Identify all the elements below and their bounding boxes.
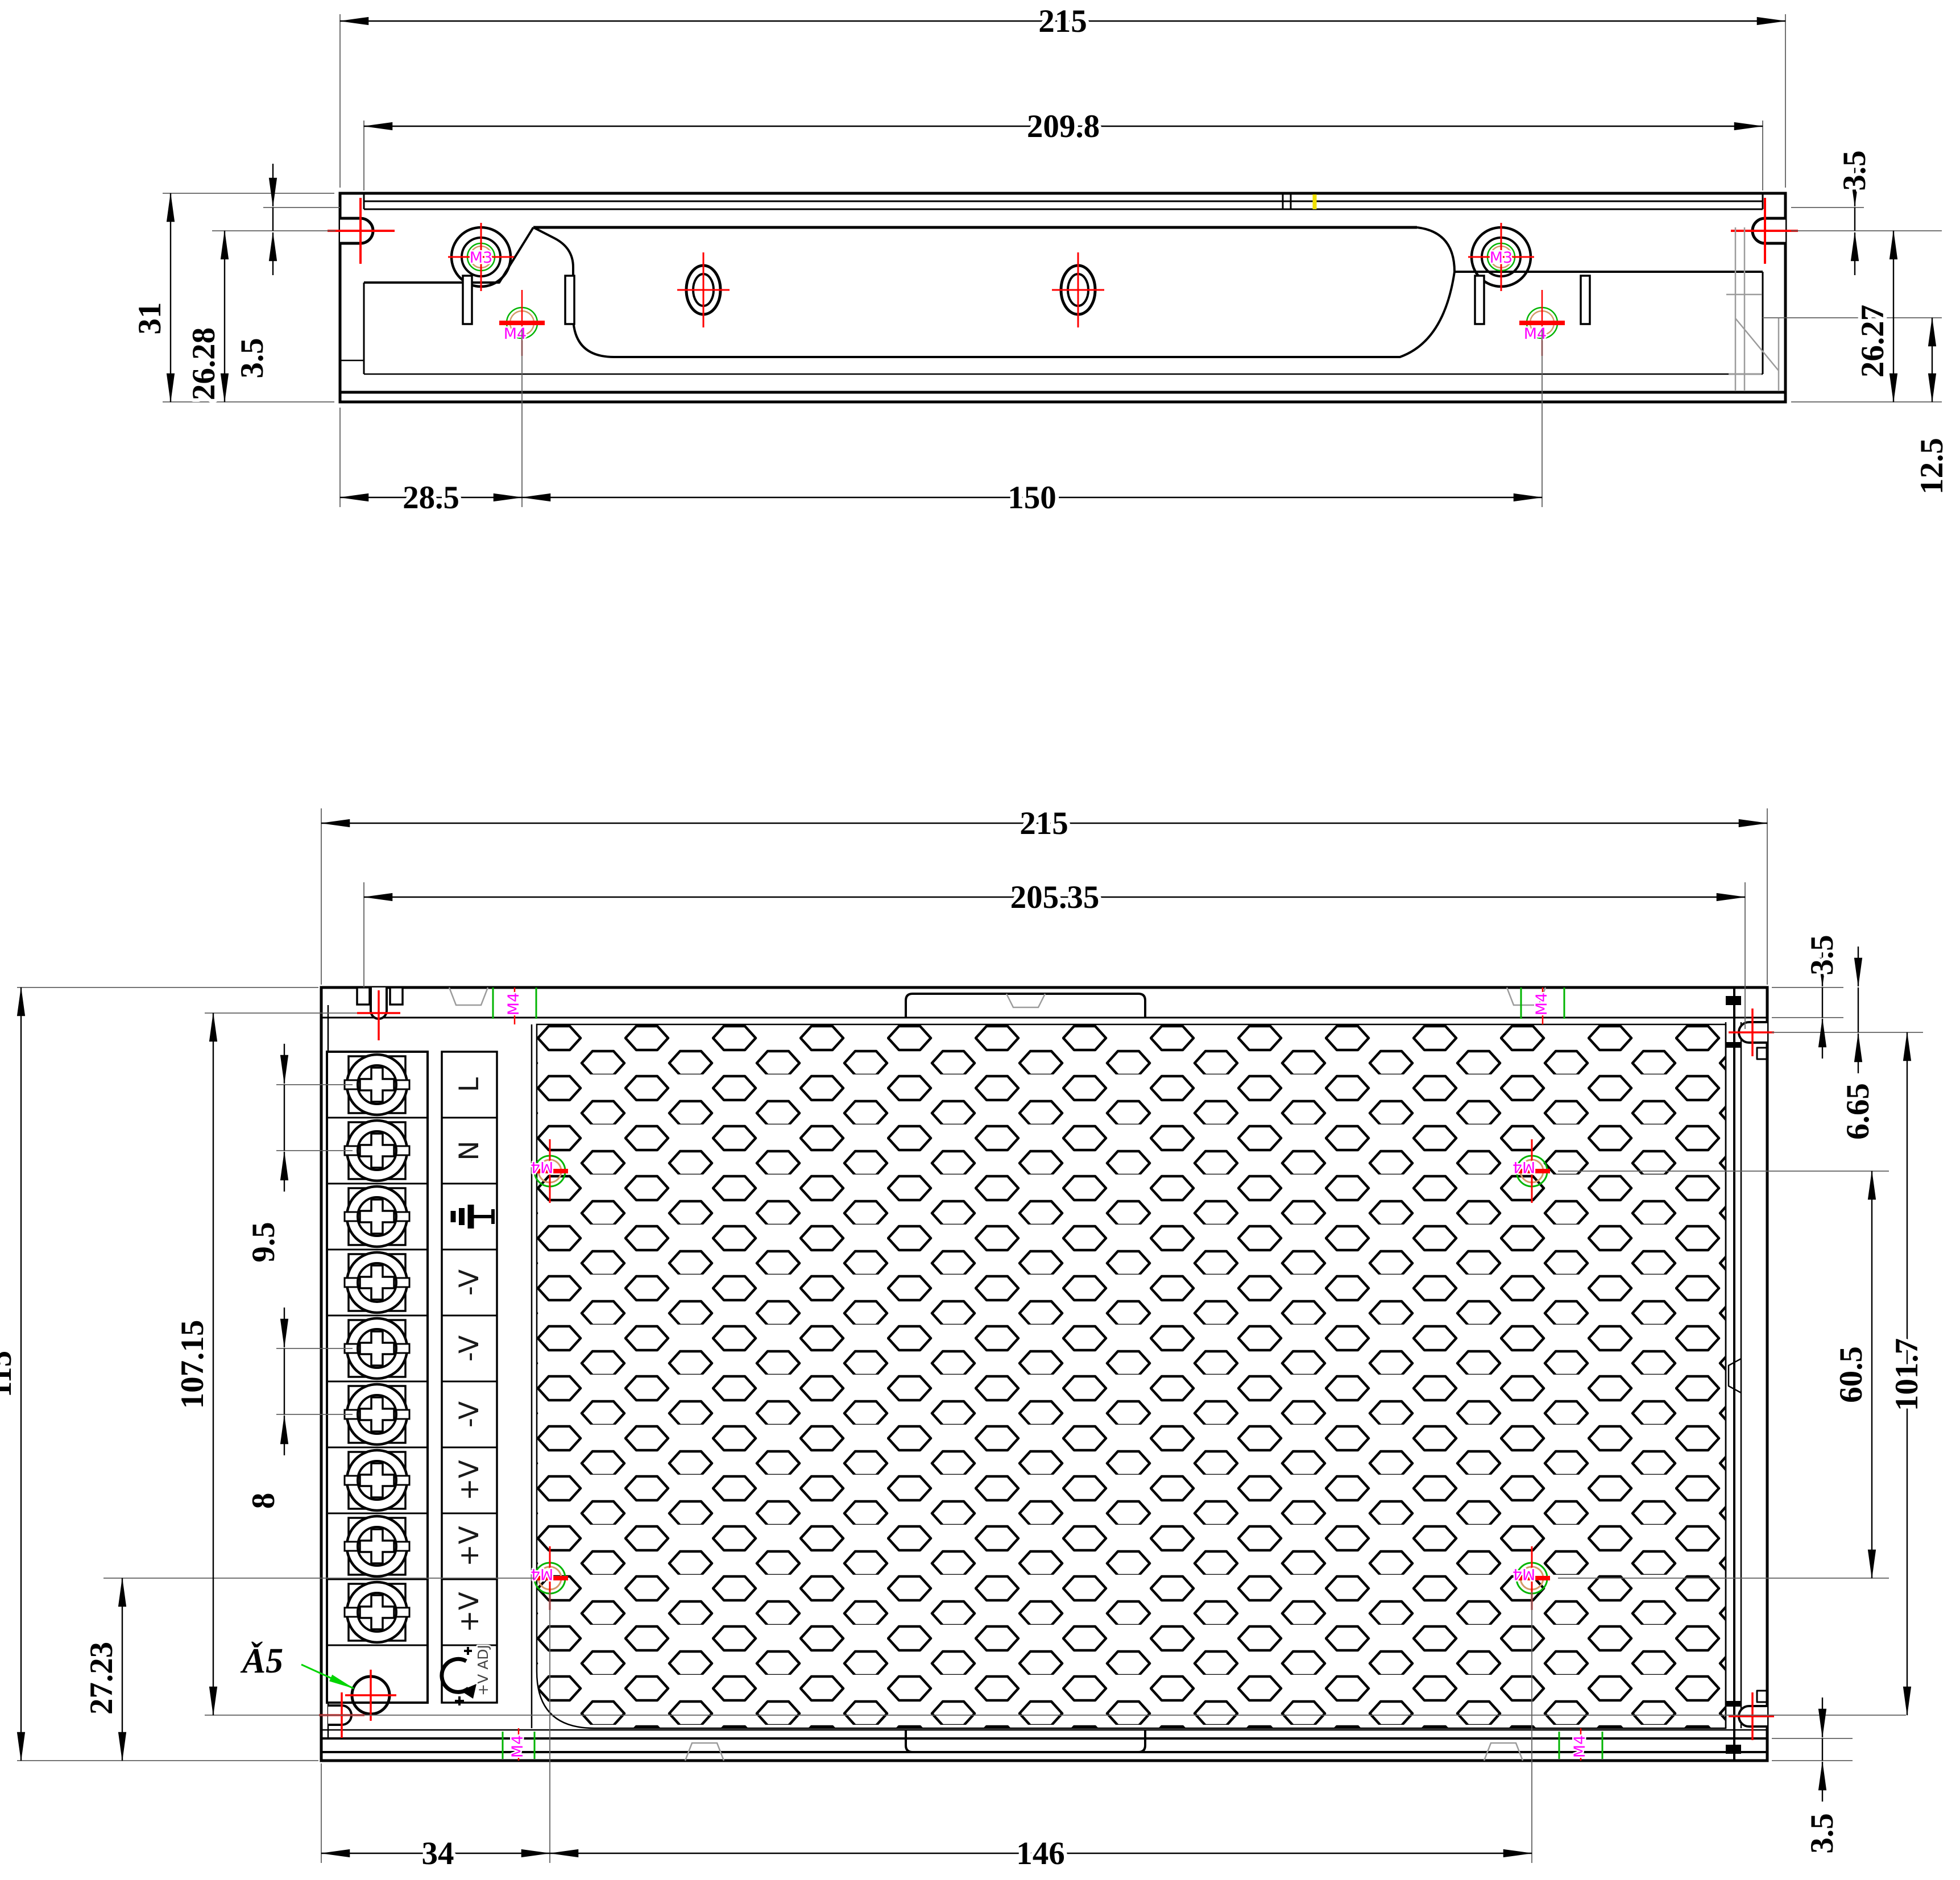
vent-slot bbox=[1581, 276, 1590, 324]
terminal-screw bbox=[345, 1186, 409, 1247]
terminal-screw bbox=[345, 1450, 409, 1510]
dim-hole-column-spacing: 146 bbox=[1016, 1836, 1065, 1871]
latch-pad bbox=[1726, 996, 1741, 1005]
terminal-label: -V bbox=[454, 1335, 485, 1362]
dim-slot-to-bottom-right: 26.27 bbox=[1855, 305, 1891, 377]
dim-input-pitch: 9.5 bbox=[246, 1222, 281, 1262]
dim-top-wall: 3.5 bbox=[1804, 935, 1840, 975]
top-edge-notch bbox=[357, 987, 370, 1005]
latch-pad bbox=[1726, 1701, 1741, 1707]
dim-terminal-span: 107.15 bbox=[175, 1320, 210, 1409]
thread-label: M4 bbox=[531, 1158, 553, 1176]
dim-left-edge-to-hole: 28.5 bbox=[403, 480, 459, 516]
terminal-screw bbox=[345, 1252, 409, 1313]
plan-view: M4 M4 M4 M4 LN-V-V-V+V+V+V bbox=[0, 806, 1925, 1871]
dim-top-to-side-slot: 6.65 bbox=[1840, 1083, 1876, 1140]
vent-slot bbox=[1475, 276, 1484, 324]
thread-label: M4 bbox=[1524, 325, 1547, 343]
drawing-canvas: M3 M3 M4 M4 bbox=[0, 0, 1960, 1880]
thread-label: M4 bbox=[531, 1565, 553, 1583]
technical-drawing-page: M3 M3 M4 M4 bbox=[0, 0, 1960, 1880]
terminal-label: N bbox=[454, 1140, 485, 1160]
terminal-screw bbox=[345, 1582, 409, 1642]
dim-bottom-wall: 3.5 bbox=[1804, 1813, 1840, 1853]
terminal-label: +V bbox=[454, 1460, 485, 1501]
dim-top-to-slot-left: 3.5 bbox=[234, 338, 270, 378]
terminal-screw bbox=[345, 1120, 409, 1181]
thread-label: M4 bbox=[1571, 1735, 1589, 1758]
terminal-label: L bbox=[454, 1077, 485, 1092]
side-view: M3 M3 M4 M4 bbox=[132, 3, 1950, 516]
thread-label: M4 bbox=[509, 1735, 527, 1758]
terminal-block: LN-V-V-V+V+V+V +V ADJ bbox=[327, 1052, 497, 1705]
terminal-label: -V bbox=[454, 1269, 485, 1296]
thread-label: M4 bbox=[505, 993, 523, 1015]
thread-label: M4 bbox=[1513, 1565, 1535, 1583]
terminal-screw bbox=[345, 1055, 409, 1115]
hole-callout: Ǎ5 bbox=[240, 1642, 283, 1680]
dim-flange-width: 209.8 bbox=[1027, 109, 1100, 144]
thread-label: M4 bbox=[1513, 1158, 1535, 1176]
terminal-label: +V bbox=[454, 1526, 485, 1567]
dim-slot-to-bottom-left: 26.28 bbox=[186, 327, 222, 400]
thread-label: M4 bbox=[1533, 993, 1551, 1015]
dim-top-to-slot-right: 3.5 bbox=[1837, 150, 1872, 190]
terminal-label: -V bbox=[454, 1401, 485, 1427]
top-edge-notch bbox=[390, 987, 403, 1005]
hex-mesh bbox=[532, 1024, 1726, 1728]
dim-side-slot-spacing: 101.7 bbox=[1889, 1338, 1925, 1411]
dim-overall-width: 215 bbox=[1020, 806, 1068, 841]
dim-output-pitch: 8 bbox=[246, 1493, 281, 1509]
dim-hole-row-spacing: 60.5 bbox=[1833, 1346, 1869, 1403]
terminal-label: +V bbox=[454, 1592, 485, 1633]
dim-left-edge-to-hole-column: 34 bbox=[422, 1836, 454, 1871]
terminal-screw bbox=[345, 1384, 409, 1445]
dim-overall-height: 31 bbox=[132, 302, 168, 335]
dim-inner-width: 205.35 bbox=[1010, 879, 1100, 915]
terminal-screw bbox=[345, 1318, 409, 1379]
adjust-label: +V ADJ bbox=[475, 1645, 491, 1696]
latch-pad bbox=[1726, 1745, 1741, 1754]
thread-label: M3 bbox=[470, 249, 492, 267]
dim-hole-spacing: 150 bbox=[1008, 480, 1056, 516]
thread-label: M4 bbox=[504, 325, 527, 343]
dim-bracket-height: 12.5 bbox=[1914, 438, 1950, 495]
thread-label: M3 bbox=[1490, 249, 1513, 267]
vent-slot bbox=[463, 276, 472, 324]
dim-overall-height: 115 bbox=[0, 1351, 18, 1397]
dim-overall-width: 215 bbox=[1038, 3, 1087, 39]
terminal-screw bbox=[345, 1516, 409, 1576]
latch-pad bbox=[1726, 1042, 1741, 1048]
vent-slot bbox=[565, 276, 574, 324]
dim-hole-row-to-bottom: 27.23 bbox=[84, 1642, 119, 1715]
